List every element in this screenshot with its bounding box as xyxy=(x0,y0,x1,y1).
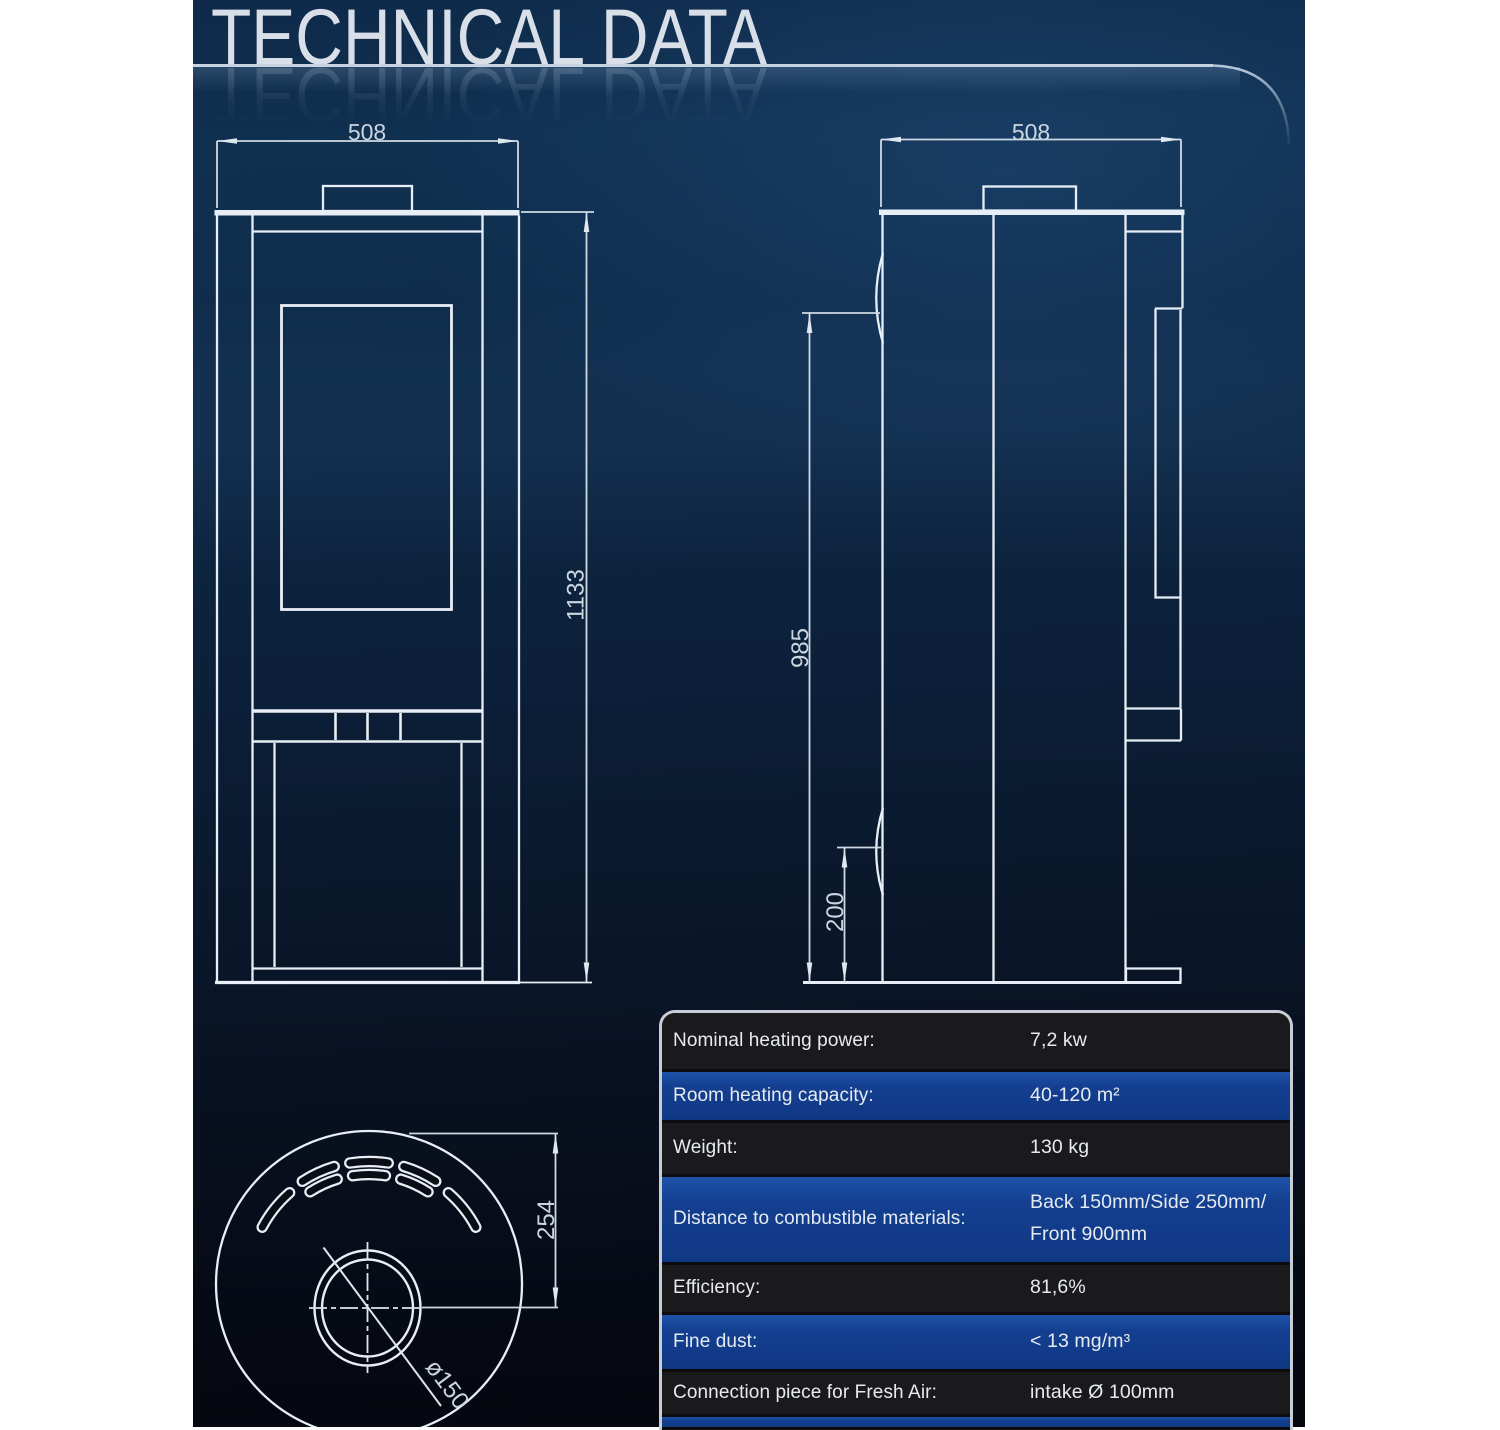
svg-text:254: 254 xyxy=(533,1200,560,1240)
svg-text:508: 508 xyxy=(348,119,386,145)
svg-text:200: 200 xyxy=(822,892,849,932)
svg-text:ø150: ø150 xyxy=(420,1355,474,1415)
svg-text:985: 985 xyxy=(787,628,814,668)
svg-text:508: 508 xyxy=(1012,119,1050,145)
svg-text:1133: 1133 xyxy=(563,569,590,621)
